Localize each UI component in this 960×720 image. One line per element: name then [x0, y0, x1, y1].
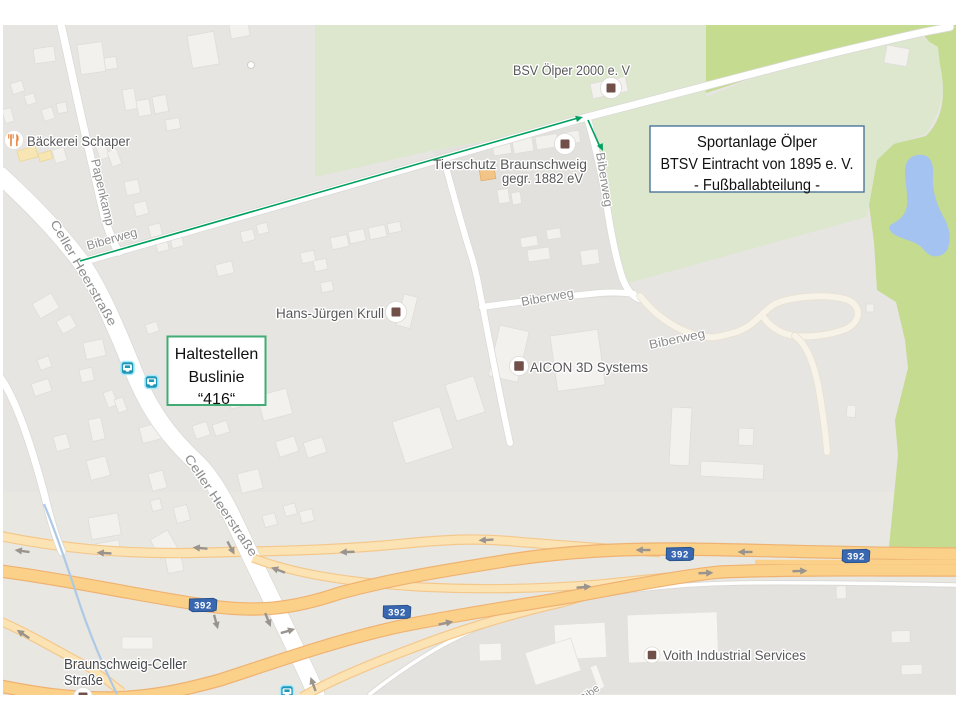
svg-text:Bäckerei Schaper: Bäckerei Schaper: [27, 134, 130, 149]
svg-text:392: 392: [388, 608, 406, 619]
svg-text:Sportanlage Ölper: Sportanlage Ölper: [697, 133, 818, 151]
svg-text:392: 392: [194, 601, 212, 612]
svg-text:- Fußballabteilung -: - Fußballabteilung -: [694, 177, 820, 194]
svg-text:392: 392: [847, 552, 865, 563]
svg-text:392: 392: [671, 550, 689, 561]
svg-text:“416“: “416“: [198, 391, 235, 408]
svg-text:Hans-Jürgen Krull: Hans-Jürgen Krull: [276, 306, 384, 321]
svg-text:Straße: Straße: [64, 673, 103, 689]
svg-text:Buslinie: Buslinie: [188, 369, 244, 386]
svg-text:AICON 3D Systems: AICON 3D Systems: [530, 360, 648, 375]
svg-text:Braunschweig-Celler: Braunschweig-Celler: [64, 657, 187, 673]
svg-text:Tierschutz Braunschweig: Tierschutz Braunschweig: [433, 157, 587, 172]
svg-text:gegr. 1882 eV: gegr. 1882 eV: [502, 171, 583, 186]
svg-text:BTSV Eintracht von 1895 e. V.: BTSV Eintracht von 1895 e. V.: [661, 156, 854, 173]
svg-text:Voith Industrial Services: Voith Industrial Services: [663, 648, 806, 663]
svg-text:BSV Ölper 2000 e. V: BSV Ölper 2000 e. V: [513, 63, 630, 78]
svg-text:Haltestellen: Haltestellen: [175, 346, 259, 363]
